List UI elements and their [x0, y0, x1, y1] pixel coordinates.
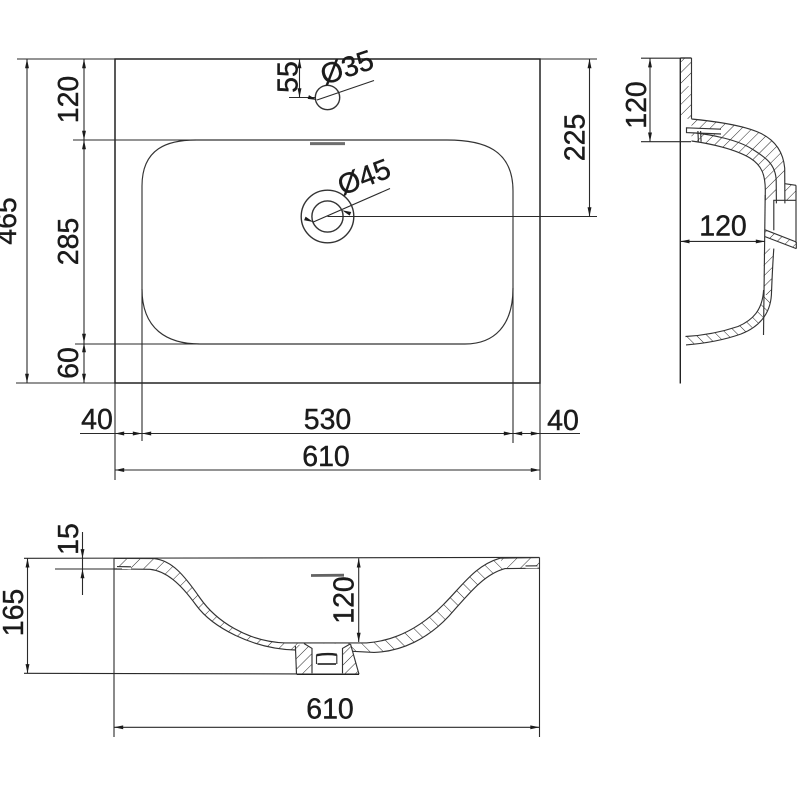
svg-text:165: 165	[0, 589, 30, 637]
svg-text:40: 40	[547, 405, 579, 437]
svg-text:55: 55	[273, 61, 305, 93]
svg-text:40: 40	[81, 404, 113, 436]
svg-text:120: 120	[53, 76, 85, 124]
svg-text:225: 225	[560, 114, 592, 162]
svg-text:Ø35: Ø35	[317, 44, 378, 91]
svg-text:120: 120	[329, 576, 361, 624]
svg-text:285: 285	[53, 218, 85, 266]
svg-text:15: 15	[53, 523, 85, 555]
svg-text:60: 60	[53, 347, 85, 379]
svg-text:530: 530	[304, 404, 352, 436]
svg-text:610: 610	[302, 441, 350, 473]
svg-text:Ø45: Ø45	[333, 153, 395, 202]
svg-text:120: 120	[621, 81, 653, 129]
svg-text:120: 120	[699, 211, 747, 243]
svg-text:465: 465	[0, 197, 23, 245]
svg-text:610: 610	[306, 694, 354, 726]
